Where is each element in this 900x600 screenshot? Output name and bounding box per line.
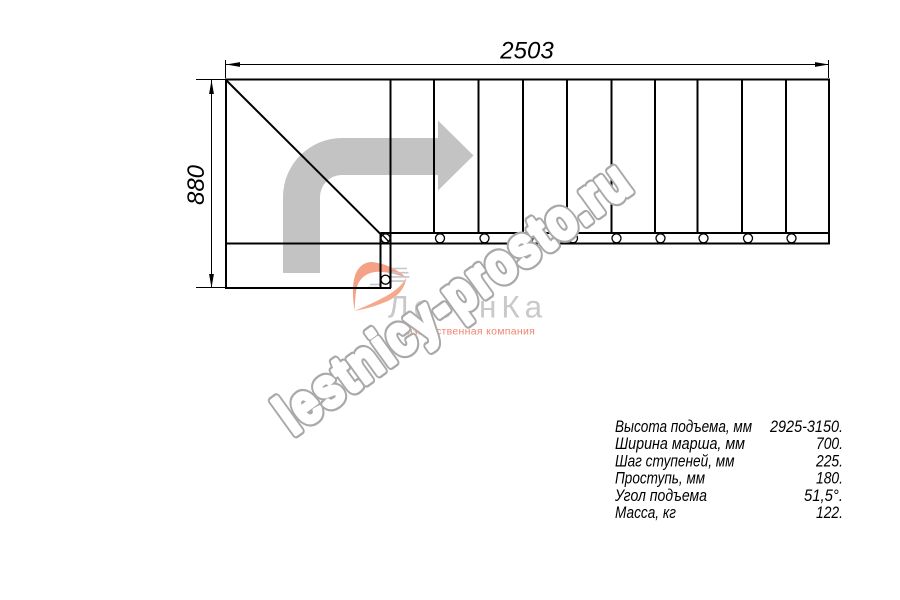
svg-text:2503: 2503 <box>499 38 554 65</box>
svg-text:Угол подъема: Угол подъема <box>614 486 707 505</box>
svg-text:Ширина марша, мм: Ширина марша, мм <box>615 434 745 453</box>
svg-text:700.: 700. <box>816 434 843 453</box>
svg-text:Масса, кг: Масса, кг <box>615 503 676 522</box>
svg-text:225.: 225. <box>815 451 843 470</box>
svg-text:Проступь, мм: Проступь, мм <box>615 469 705 488</box>
svg-text:51,5°.: 51,5°. <box>804 486 843 505</box>
svg-text:2925-3150.: 2925-3150. <box>769 417 843 436</box>
svg-text:122.: 122. <box>816 503 843 522</box>
svg-text:880: 880 <box>183 164 210 205</box>
svg-text:Шаг ступеней, мм: Шаг ступеней, мм <box>615 451 735 470</box>
svg-text:180.: 180. <box>816 469 843 488</box>
svg-text:Высота подъема, мм: Высота подъема, мм <box>615 417 752 436</box>
